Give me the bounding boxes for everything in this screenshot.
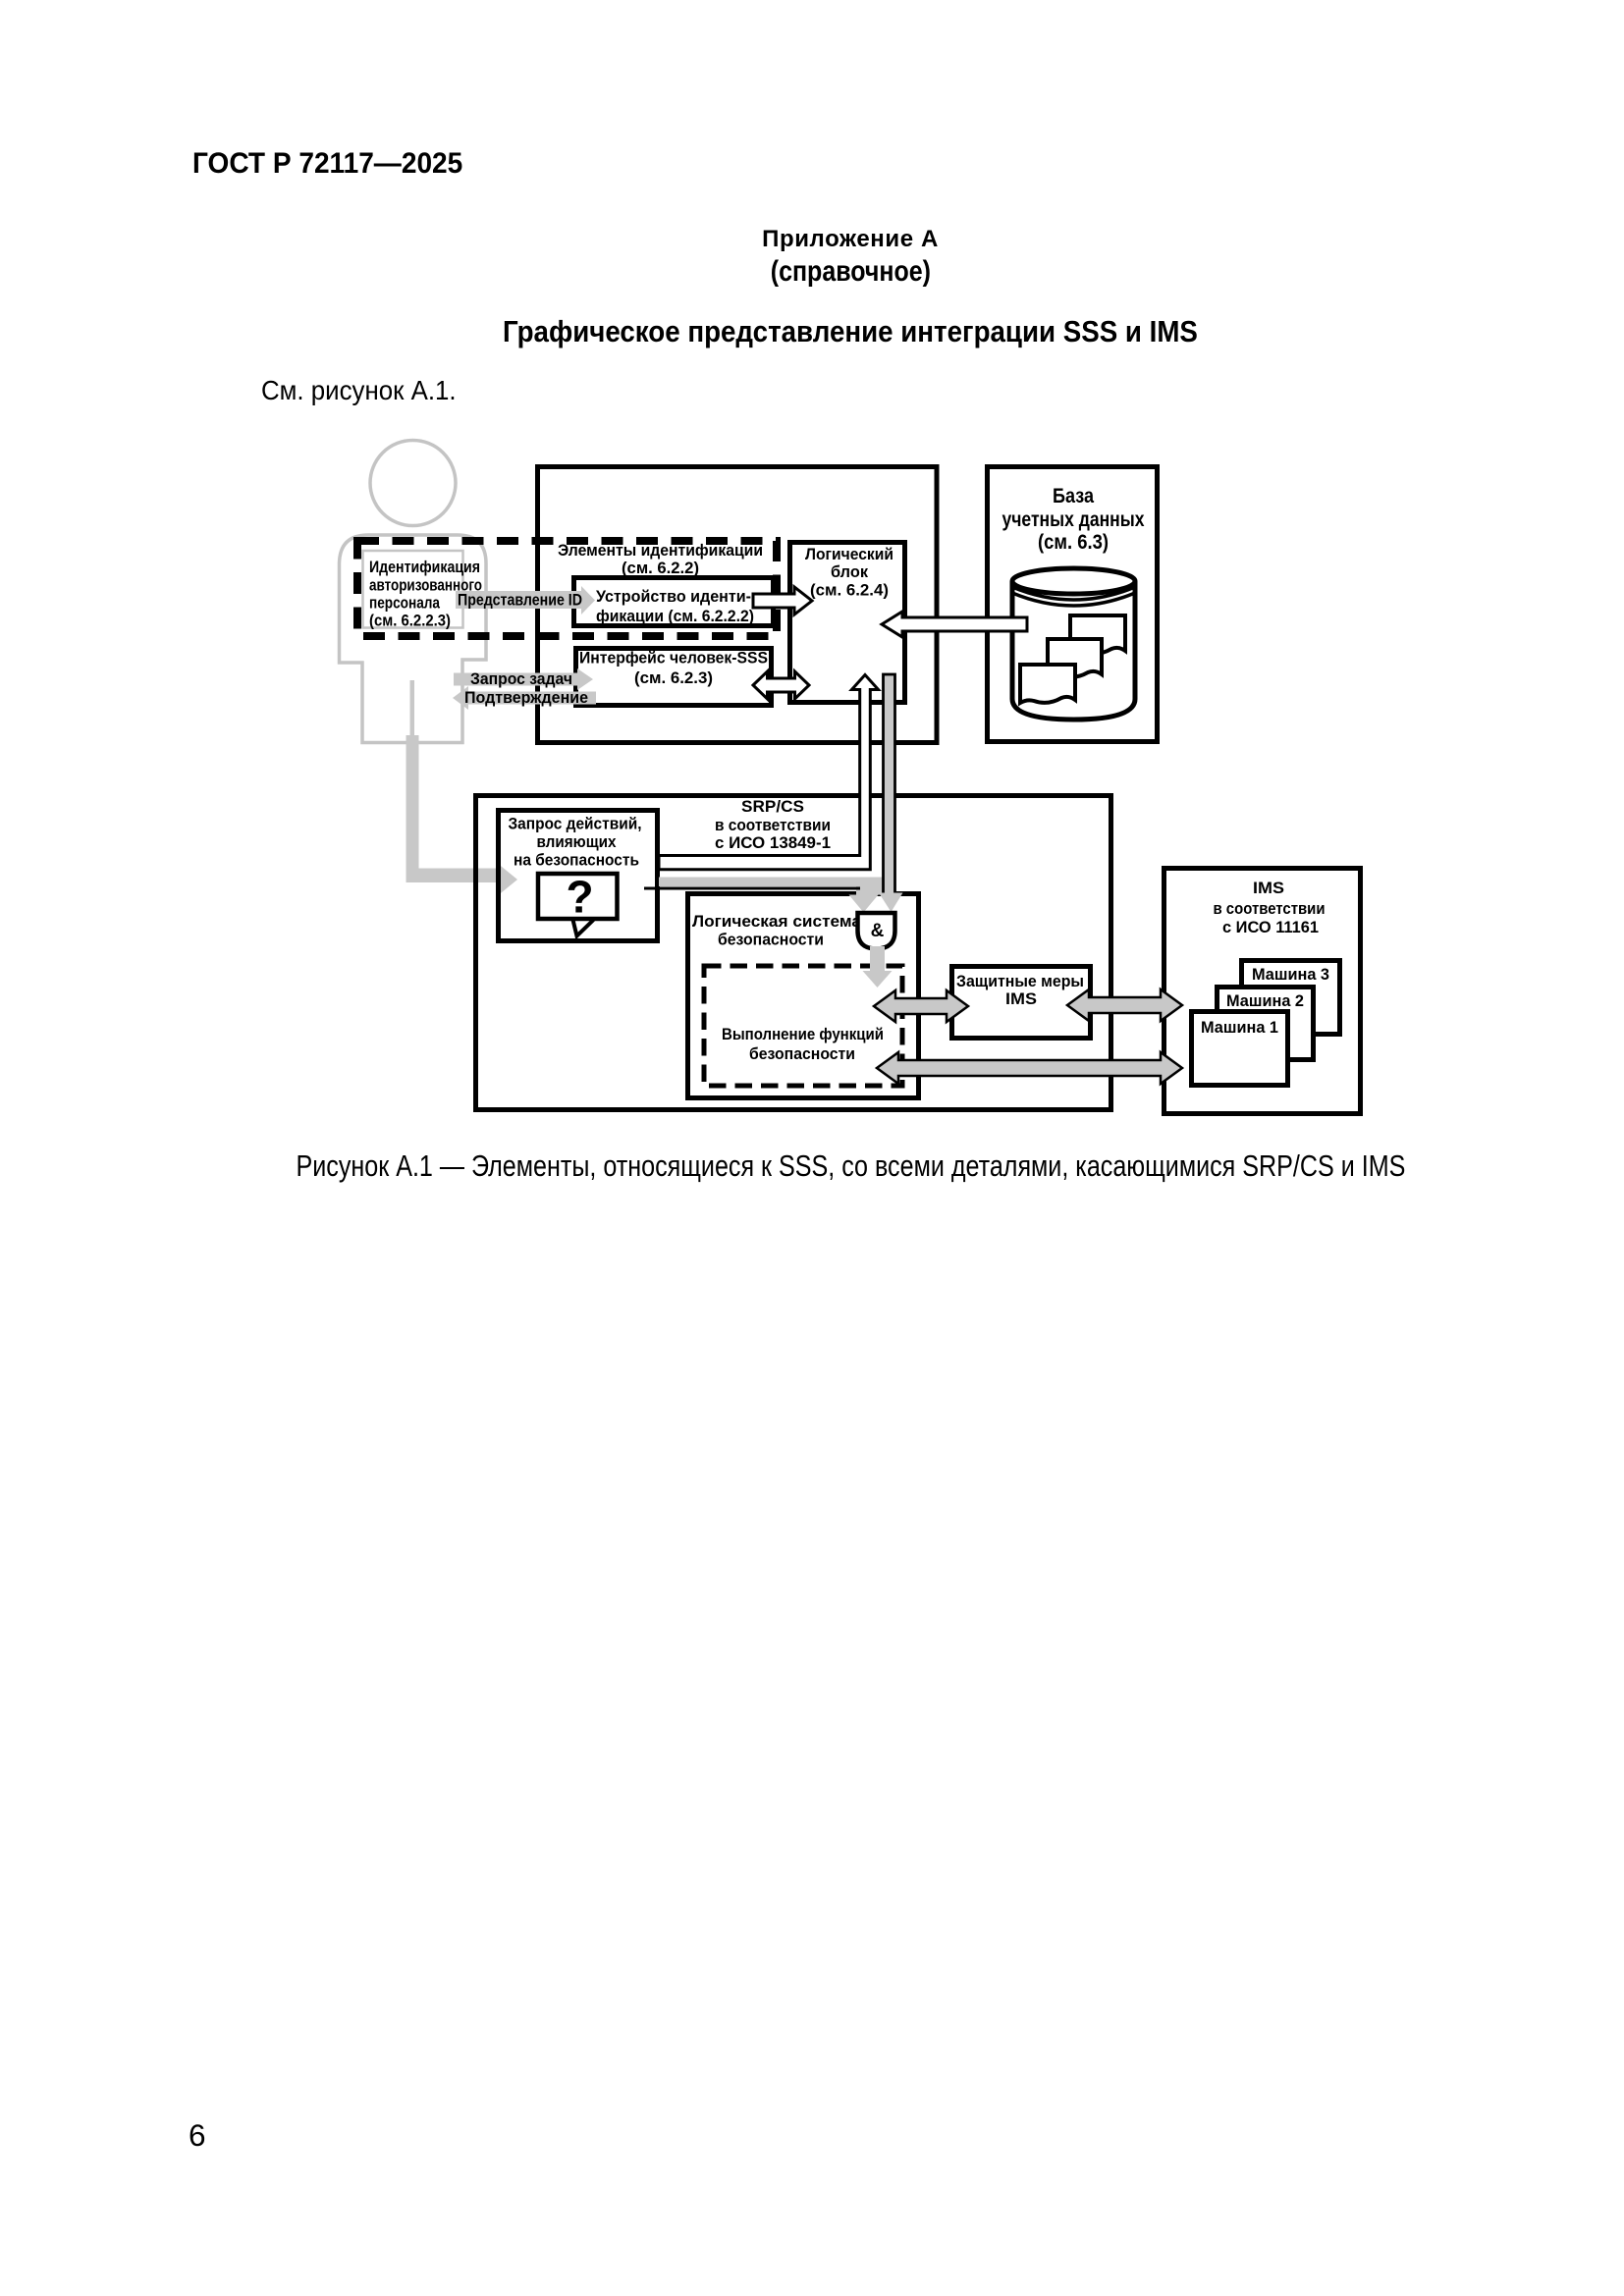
svg-text:с ИСО 13849-1: с ИСО 13849-1 xyxy=(715,833,831,852)
svg-text:в соответствии: в соответствии xyxy=(1214,899,1326,918)
svg-text:Защитные меры: Защитные меры xyxy=(956,972,1084,990)
svg-text:безопасности: безопасности xyxy=(718,931,824,949)
svg-text:Машина 1: Машина 1 xyxy=(1201,1018,1278,1037)
svg-text:?: ? xyxy=(566,872,593,923)
svg-text:персонала: персонала xyxy=(369,594,440,613)
svg-text:Запрос действий,: Запрос действий, xyxy=(509,815,642,833)
svg-text:IMS: IMS xyxy=(1253,879,1284,897)
svg-text:Элементы идентификации: Элементы идентификации xyxy=(558,541,763,560)
svg-text:учетных данных: учетных данных xyxy=(1002,508,1145,531)
svg-text:на безопасность: на безопасность xyxy=(514,851,639,870)
svg-text:База: База xyxy=(1053,485,1094,507)
svg-text:Логический: Логический xyxy=(805,545,893,563)
svg-text:с ИСО 11161: с ИСО 11161 xyxy=(1222,918,1319,936)
svg-text:Идентификация: Идентификация xyxy=(369,558,480,576)
svg-text:Запрос задач: Запрос задач xyxy=(470,669,572,688)
svg-text:фикации (см. 6.2.2.2): фикации (см. 6.2.2.2) xyxy=(596,607,754,625)
svg-text:Устройство иденти-: Устройство иденти- xyxy=(596,587,751,606)
svg-text:блок: блок xyxy=(831,562,868,581)
svg-text:в соответствии: в соответствии xyxy=(715,816,831,834)
svg-text:&: & xyxy=(871,921,885,941)
svg-text:Машина 2: Машина 2 xyxy=(1226,991,1304,1010)
svg-text:SRP/CS: SRP/CS xyxy=(741,797,804,816)
svg-text:Логическая система: Логическая система xyxy=(692,912,862,931)
svg-text:Интерфейс человек-SSS: Интерфейс человек-SSS xyxy=(579,649,768,667)
svg-text:безопасности: безопасности xyxy=(749,1044,855,1063)
svg-text:(см. 6.2.2): (см. 6.2.2) xyxy=(622,559,699,577)
svg-text:IMS: IMS xyxy=(1005,989,1037,1008)
svg-text:Подтверждение: Подтверждение xyxy=(464,688,588,707)
svg-text:(см. 6.2.4): (см. 6.2.4) xyxy=(810,581,889,600)
svg-text:влияющих: влияющих xyxy=(537,832,617,851)
svg-text:(см. 6.2.2.3): (см. 6.2.2.3) xyxy=(369,612,451,630)
svg-text:Представление ID: Представление ID xyxy=(458,591,582,610)
svg-text:(см. 6.2.3): (см. 6.2.3) xyxy=(634,668,713,687)
svg-text:(см. 6.3): (см. 6.3) xyxy=(1038,531,1109,554)
svg-text:Выполнение функций: Выполнение функций xyxy=(722,1025,884,1043)
svg-text:Машина 3: Машина 3 xyxy=(1252,965,1329,984)
